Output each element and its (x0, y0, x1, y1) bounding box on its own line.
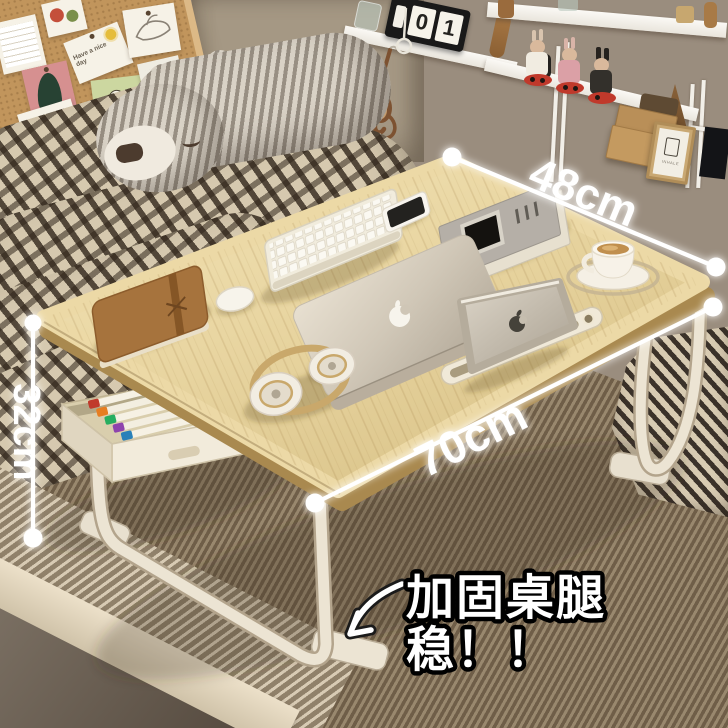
bed-table-layer (0, 0, 728, 728)
product-photo-scene: Have a nice day (0, 0, 728, 728)
coffee-crema (602, 245, 618, 250)
